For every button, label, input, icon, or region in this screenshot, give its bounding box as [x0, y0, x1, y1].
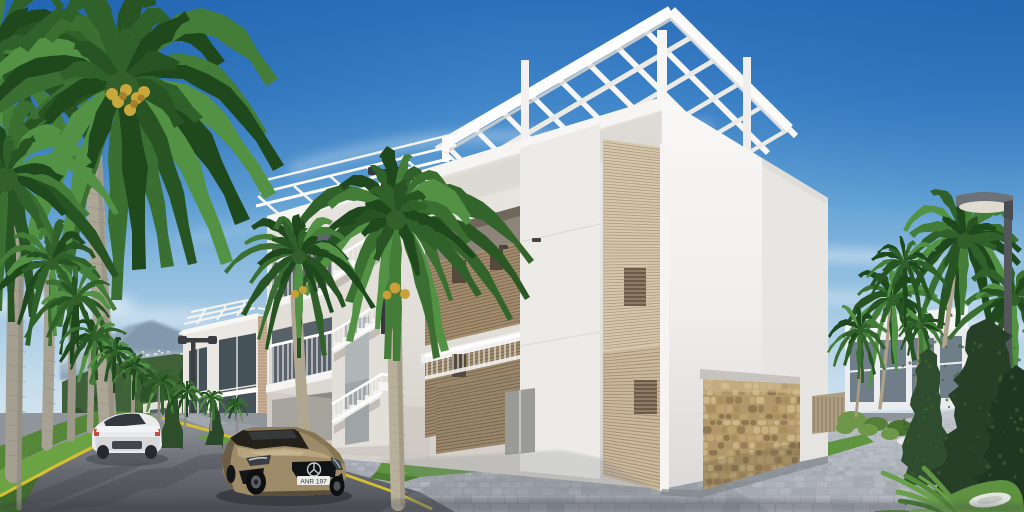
svg-text:ANR 197: ANR 197 [300, 479, 327, 486]
